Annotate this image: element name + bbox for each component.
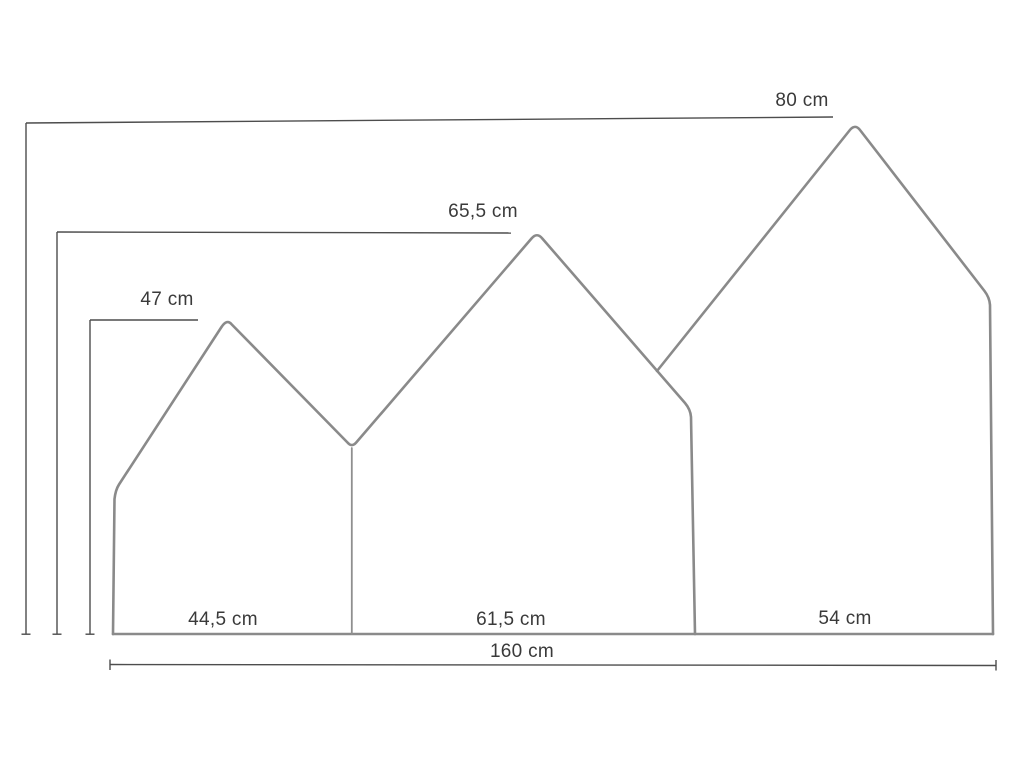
height-dim-large-horizontal-line [26,117,833,123]
height-dim-medium-horizontal-line [57,232,511,233]
total-width-dim-line [110,665,996,666]
width-label-large: 54 cm [818,608,871,629]
height-dimension-medium: 65,5 cm [53,201,518,634]
total-width-label: 160 cm [490,641,554,662]
height-label-large: 80 cm [775,90,828,111]
width-label-small: 44,5 cm [188,609,258,630]
height-label-small: 47 cm [140,289,193,310]
height-label-medium: 65,5 cm [448,201,518,222]
dimension-diagram: 80 cm 65,5 cm 47 cm 44,5 cm 61,5 cm 54 c… [0,0,1024,768]
height-dimension-large: 80 cm [22,90,834,634]
house-large-outline [657,127,993,634]
total-width-dimension: 160 cm [110,641,996,671]
width-label-medium: 61,5 cm [476,609,546,630]
height-dimension-small: 47 cm [86,289,199,634]
headboard-dimension-drawing: 80 cm 65,5 cm 47 cm 44,5 cm 61,5 cm 54 c… [0,0,1024,768]
house-small-and-medium-outline [113,235,695,634]
